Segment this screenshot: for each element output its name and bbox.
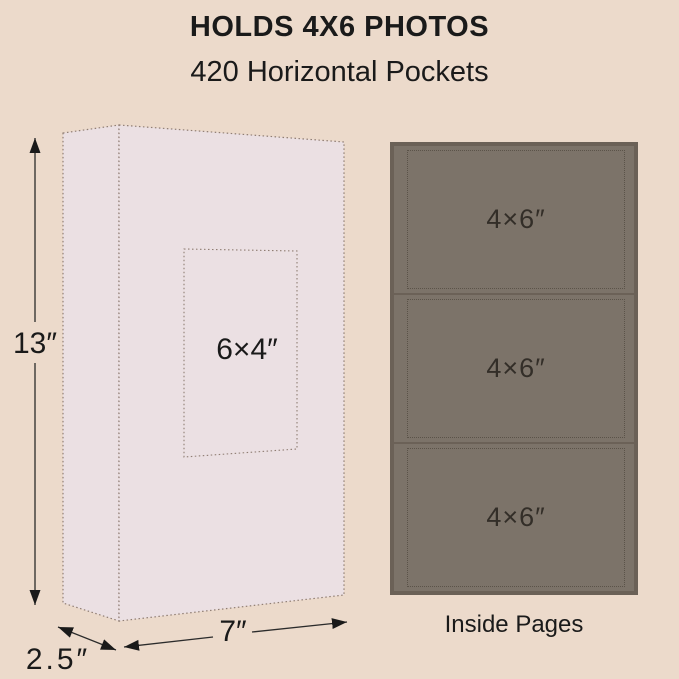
depth-label: 2.5″: [26, 643, 90, 676]
album-front-cover: [119, 125, 344, 621]
pocket-outline: 4×6″: [407, 150, 625, 289]
width-dimension-line-left: [124, 637, 213, 647]
pocket-outline: 4×6″: [407, 299, 625, 438]
pocket-outline: 4×6″: [407, 448, 625, 587]
height-label: 13″: [13, 327, 57, 360]
product-infographic: HOLDS 4X6 PHOTOS 420 Horizontal Pockets …: [0, 0, 679, 679]
pocket-row: 4×6″: [394, 442, 634, 591]
width-dimension: 7″: [124, 615, 347, 648]
pocket-size-label: 4×6″: [486, 353, 545, 384]
pocket-row: 4×6″: [394, 146, 634, 293]
inside-pages-caption: Inside Pages: [390, 611, 638, 639]
inside-pages-panel: 4×6″ 4×6″ 4×6″: [390, 142, 638, 595]
pocket-row: 4×6″: [394, 293, 634, 442]
depth-dimension: 2.5″: [26, 627, 116, 676]
album-box: 6×4″: [63, 125, 344, 621]
album-spine: [63, 125, 119, 621]
pocket-size-label: 4×6″: [486, 502, 545, 533]
front-window-size-label: 6×4″: [216, 333, 278, 366]
width-label: 7″: [219, 615, 247, 648]
width-dimension-line-right: [252, 622, 347, 632]
pocket-size-label: 4×6″: [486, 204, 545, 235]
height-dimension: 13″: [13, 138, 57, 605]
